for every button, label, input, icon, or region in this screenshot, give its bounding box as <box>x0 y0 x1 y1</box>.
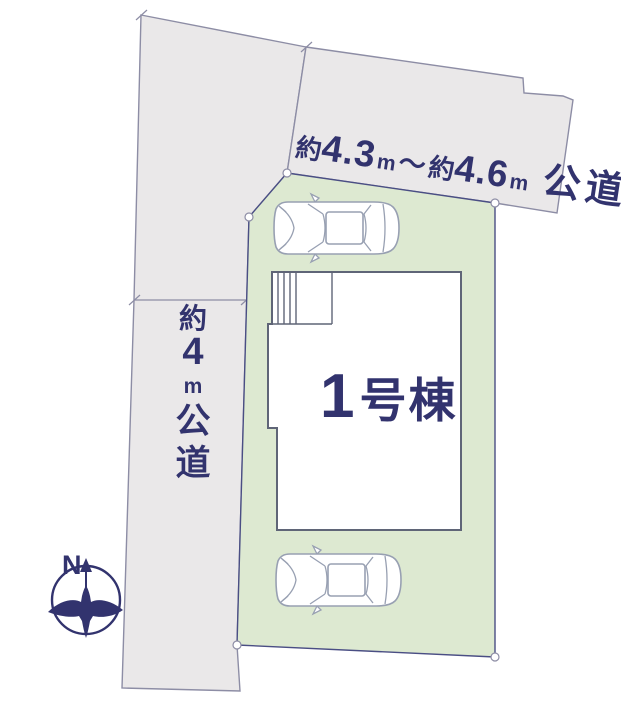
north-arrow-icon <box>80 558 92 572</box>
road-width-tilde: ～ <box>396 141 428 184</box>
boundary-marker <box>491 199 499 207</box>
road-type-char: 公 <box>175 401 210 442</box>
boundary-marker <box>233 641 241 649</box>
left-road-label: 約 4 m 公 道 <box>172 304 214 484</box>
road-width-unit: m <box>375 150 397 176</box>
road-width-approx: 約 <box>179 304 207 333</box>
compass-bird-icon <box>48 586 123 638</box>
road-type-char: 道 <box>175 443 210 484</box>
site-plan: 約 4.3 m ～ 約 4.6 m 公道 約 4 m 公 道 1 号棟 N <box>0 0 621 702</box>
building-number: 1 <box>320 361 354 432</box>
road-width-value: 4.3 <box>319 127 379 177</box>
road-width-value: 4.6 <box>452 147 512 197</box>
boundary-marker <box>245 213 253 221</box>
building-label: 1 号棟 <box>320 361 457 432</box>
road-width-unit: m <box>508 170 530 196</box>
compass <box>48 558 123 638</box>
north-label: N <box>62 550 82 581</box>
road-width-unit: m <box>184 376 203 398</box>
boundary-marker <box>283 169 291 177</box>
site-plan-canvas <box>0 0 621 702</box>
car-icon <box>276 546 401 614</box>
road-width-value: 4 <box>182 333 203 373</box>
boundary-marker <box>491 653 499 661</box>
building-suffix: 号棟 <box>359 362 457 431</box>
car-icon <box>274 194 399 262</box>
